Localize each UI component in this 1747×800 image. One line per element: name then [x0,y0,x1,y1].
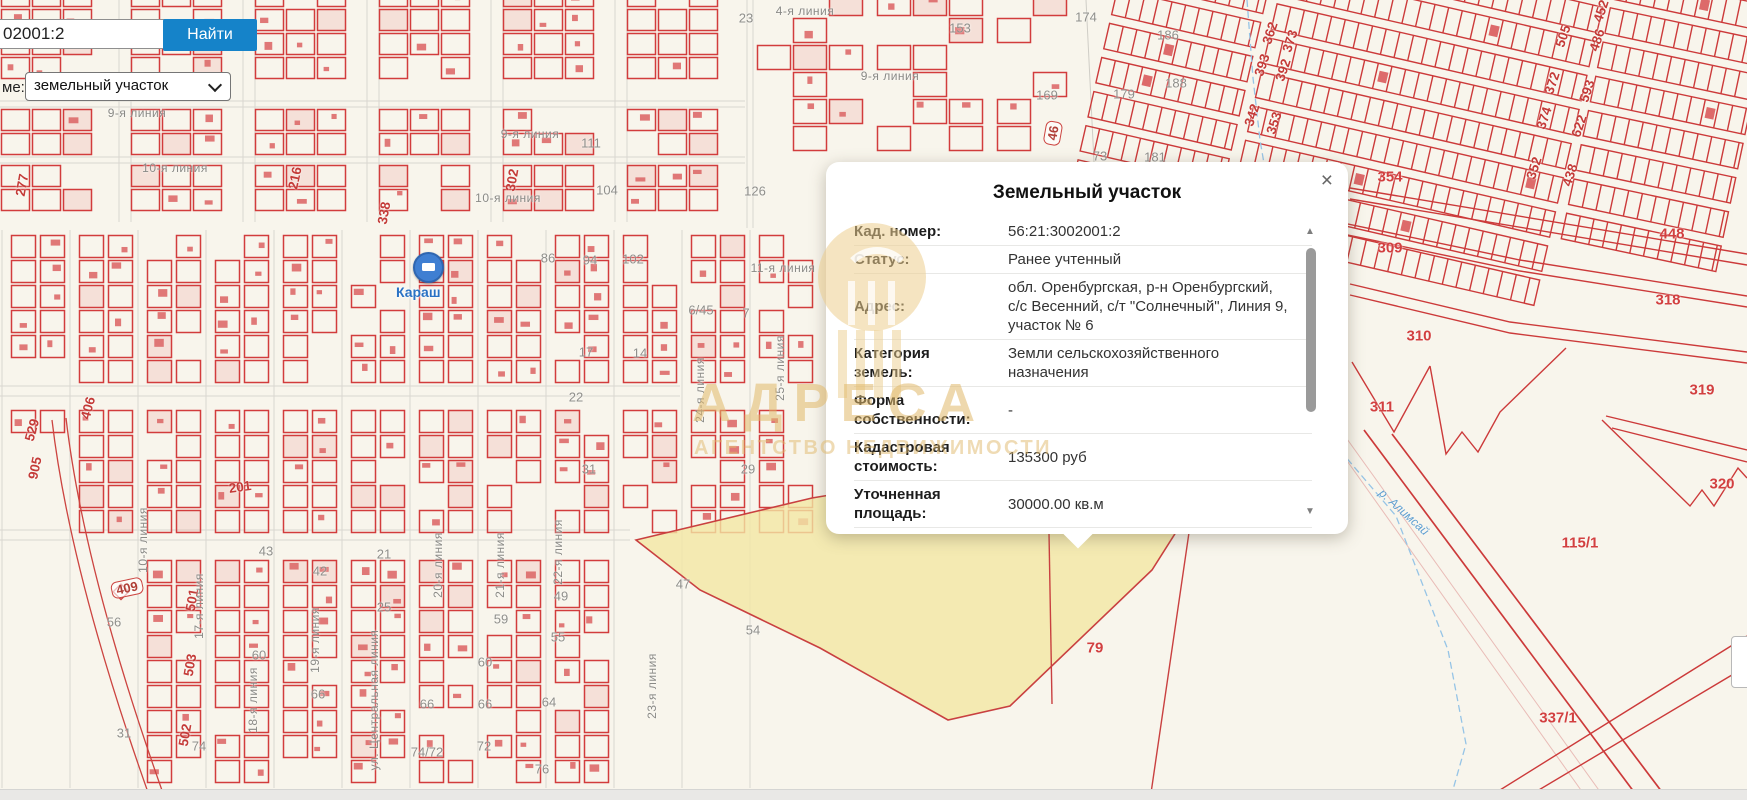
popup-row: Статус:Ранее учтенный [854,246,1312,274]
popup-row: Категория земель:Земли сельскохозяйствен… [854,340,1312,387]
scrollbar-thumb[interactable] [1306,248,1316,412]
map-control[interactable] [1731,636,1747,688]
scroll-up-icon[interactable]: ▲ [1305,226,1315,237]
scroll-down-icon[interactable]: ▼ [1305,506,1315,517]
field-value: 135300 руб [1008,448,1288,467]
field-label: Форма собственности: [854,391,982,429]
field-label: Категория земель: [854,344,982,382]
field-label: Уточненная площадь: [854,485,982,523]
chevron-down-icon [208,78,222,92]
station-icon [413,252,444,283]
field-value: Ранее учтенный [1008,250,1288,269]
popup-row: Разрешенное [854,528,1312,534]
parcel-info-popup: Земельный участок × Кад. номер:56:21:300… [826,162,1348,534]
field-label: Разрешенное [854,532,982,534]
field-label: Адрес: [854,297,982,316]
field-value: 56:21:3002001:2 [1008,222,1288,241]
close-icon[interactable]: × [1321,170,1333,191]
field-value: 30000.00 кв.м [1008,495,1288,514]
layer-label: ме: [2,79,25,96]
field-label: Кадастровая стоимость: [854,438,982,476]
find-button[interactable]: Найти [163,19,257,51]
field-value: обл. Оренбургская, р-н Оренбургский, с/с… [1008,278,1288,335]
popup-row: Кад. номер:56:21:3002001:2 [854,218,1312,246]
popup-body: Кад. номер:56:21:3002001:2Статус:Ранее у… [854,218,1312,534]
popup-row: Кадастровая стоимость:135300 руб [854,434,1312,481]
karash-label: Караш [396,284,441,300]
map-screen: 2317415318616917918812611110410294867318… [0,0,1747,800]
popup-row: Уточненная площадь:30000.00 кв.м [854,481,1312,528]
karash-marker[interactable]: Караш [413,252,444,283]
bottom-bar [0,789,1747,800]
popup-row: Форма собственности:- [854,387,1312,434]
popup-scrollbar[interactable]: ▲ ▼ [1304,226,1318,516]
popup-title: Земельный участок [826,162,1348,204]
field-value: - [1008,401,1288,420]
layer-select[interactable]: земельный участок [25,72,231,101]
field-value: Земли сельскохозяйственного назначения [1008,344,1288,382]
layer-select-value: земельный участок [34,77,168,94]
popup-row: Адрес:обл. Оренбургская, р-н Оренбургски… [854,274,1312,340]
field-label: Кад. номер: [854,222,982,241]
field-label: Статус: [854,250,982,269]
search-input[interactable] [0,19,172,49]
